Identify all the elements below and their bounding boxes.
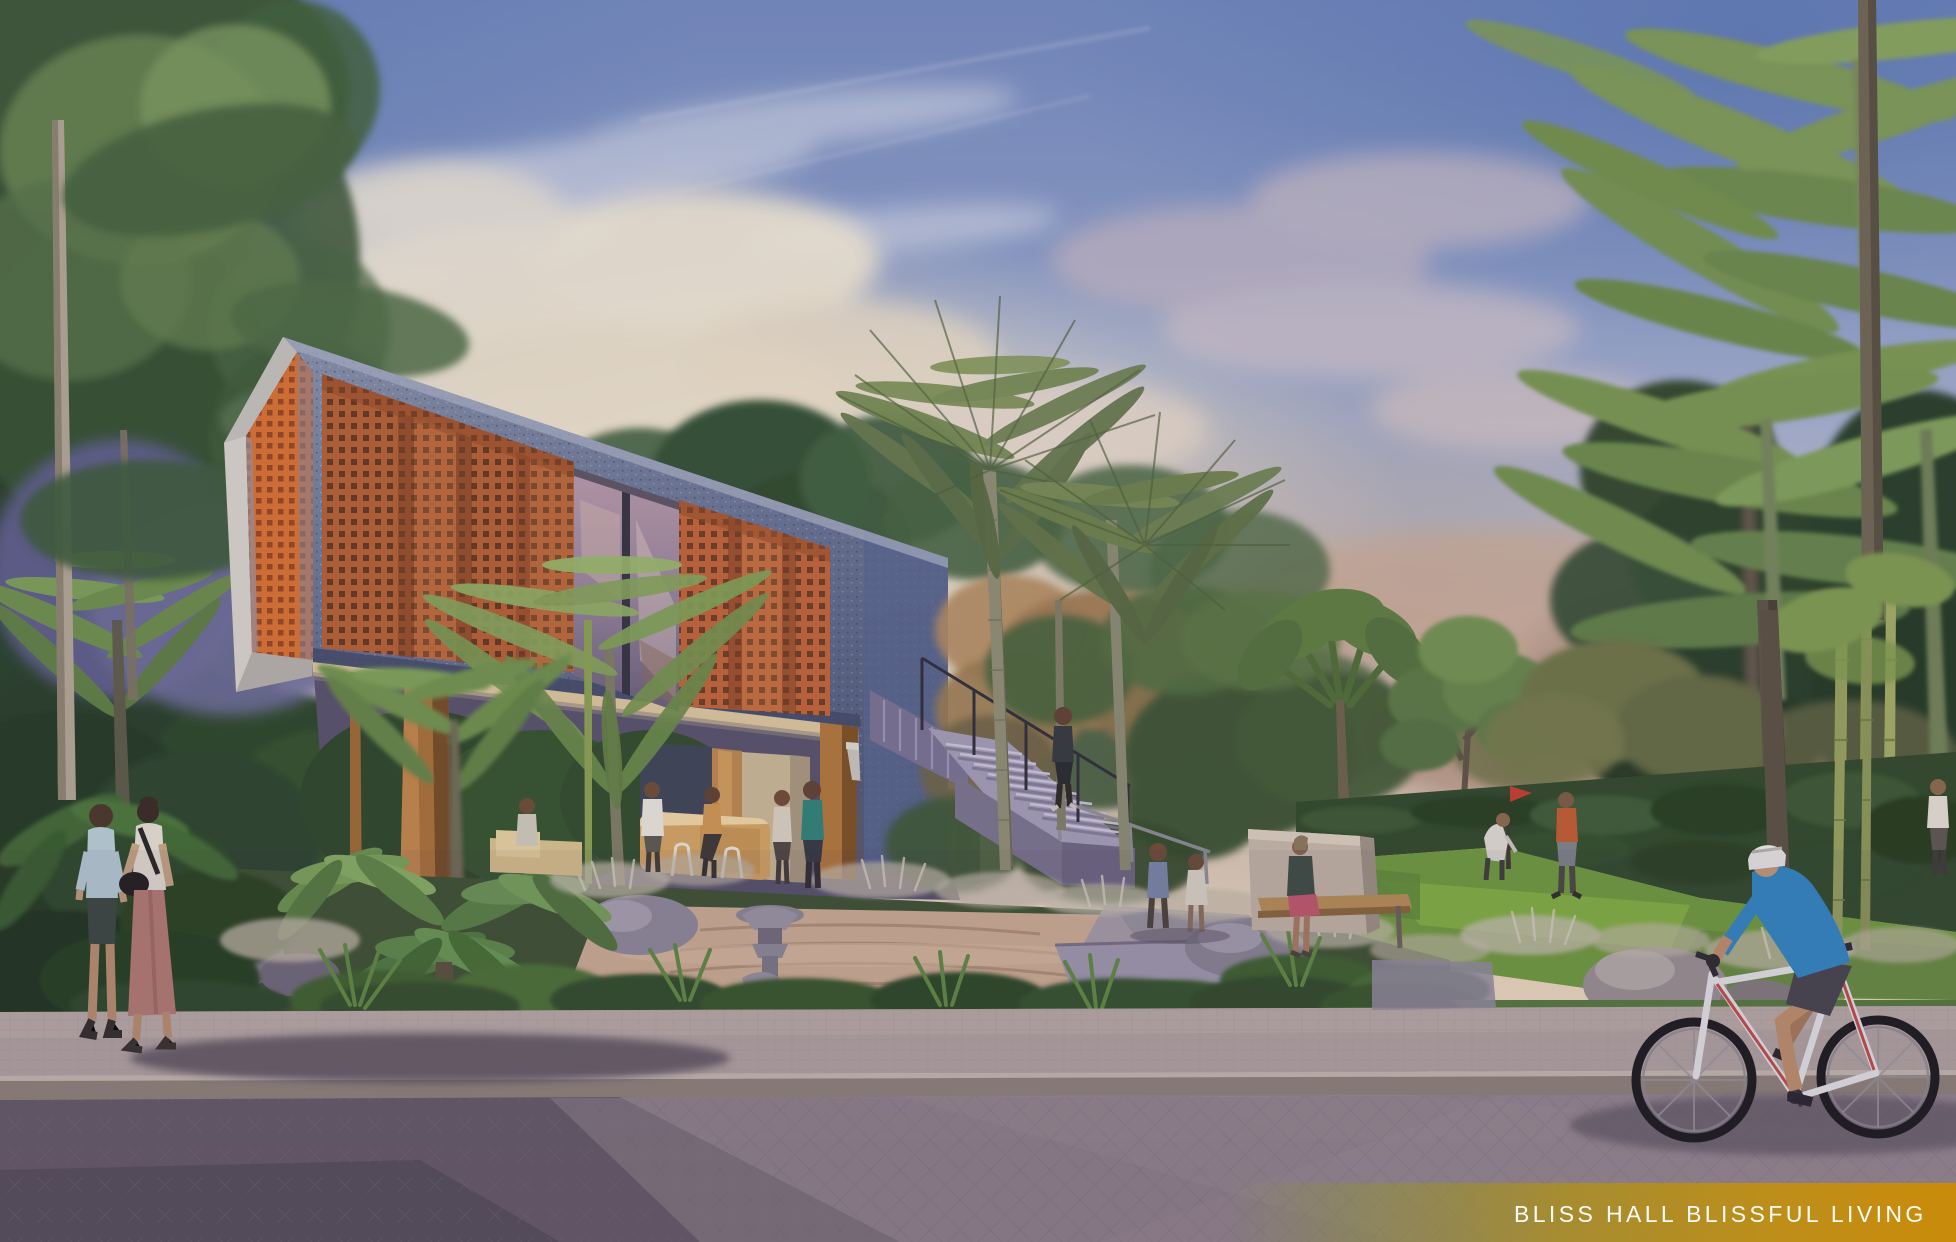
svg-text:BLISS HALL BLISSFUL LIVING: BLISS HALL BLISSFUL LIVING bbox=[1514, 1201, 1927, 1227]
